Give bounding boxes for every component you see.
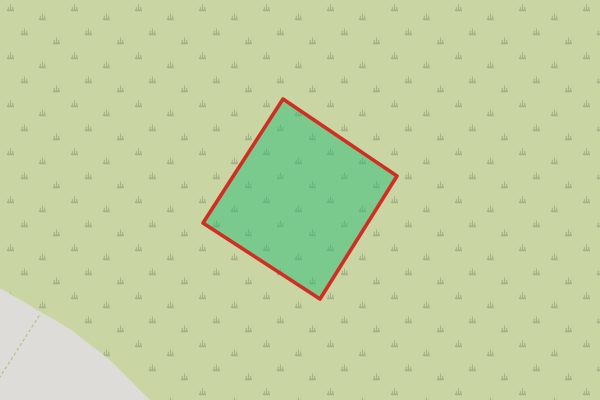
map-viewport[interactable] xyxy=(0,0,600,400)
map-canvas[interactable] xyxy=(0,0,600,400)
